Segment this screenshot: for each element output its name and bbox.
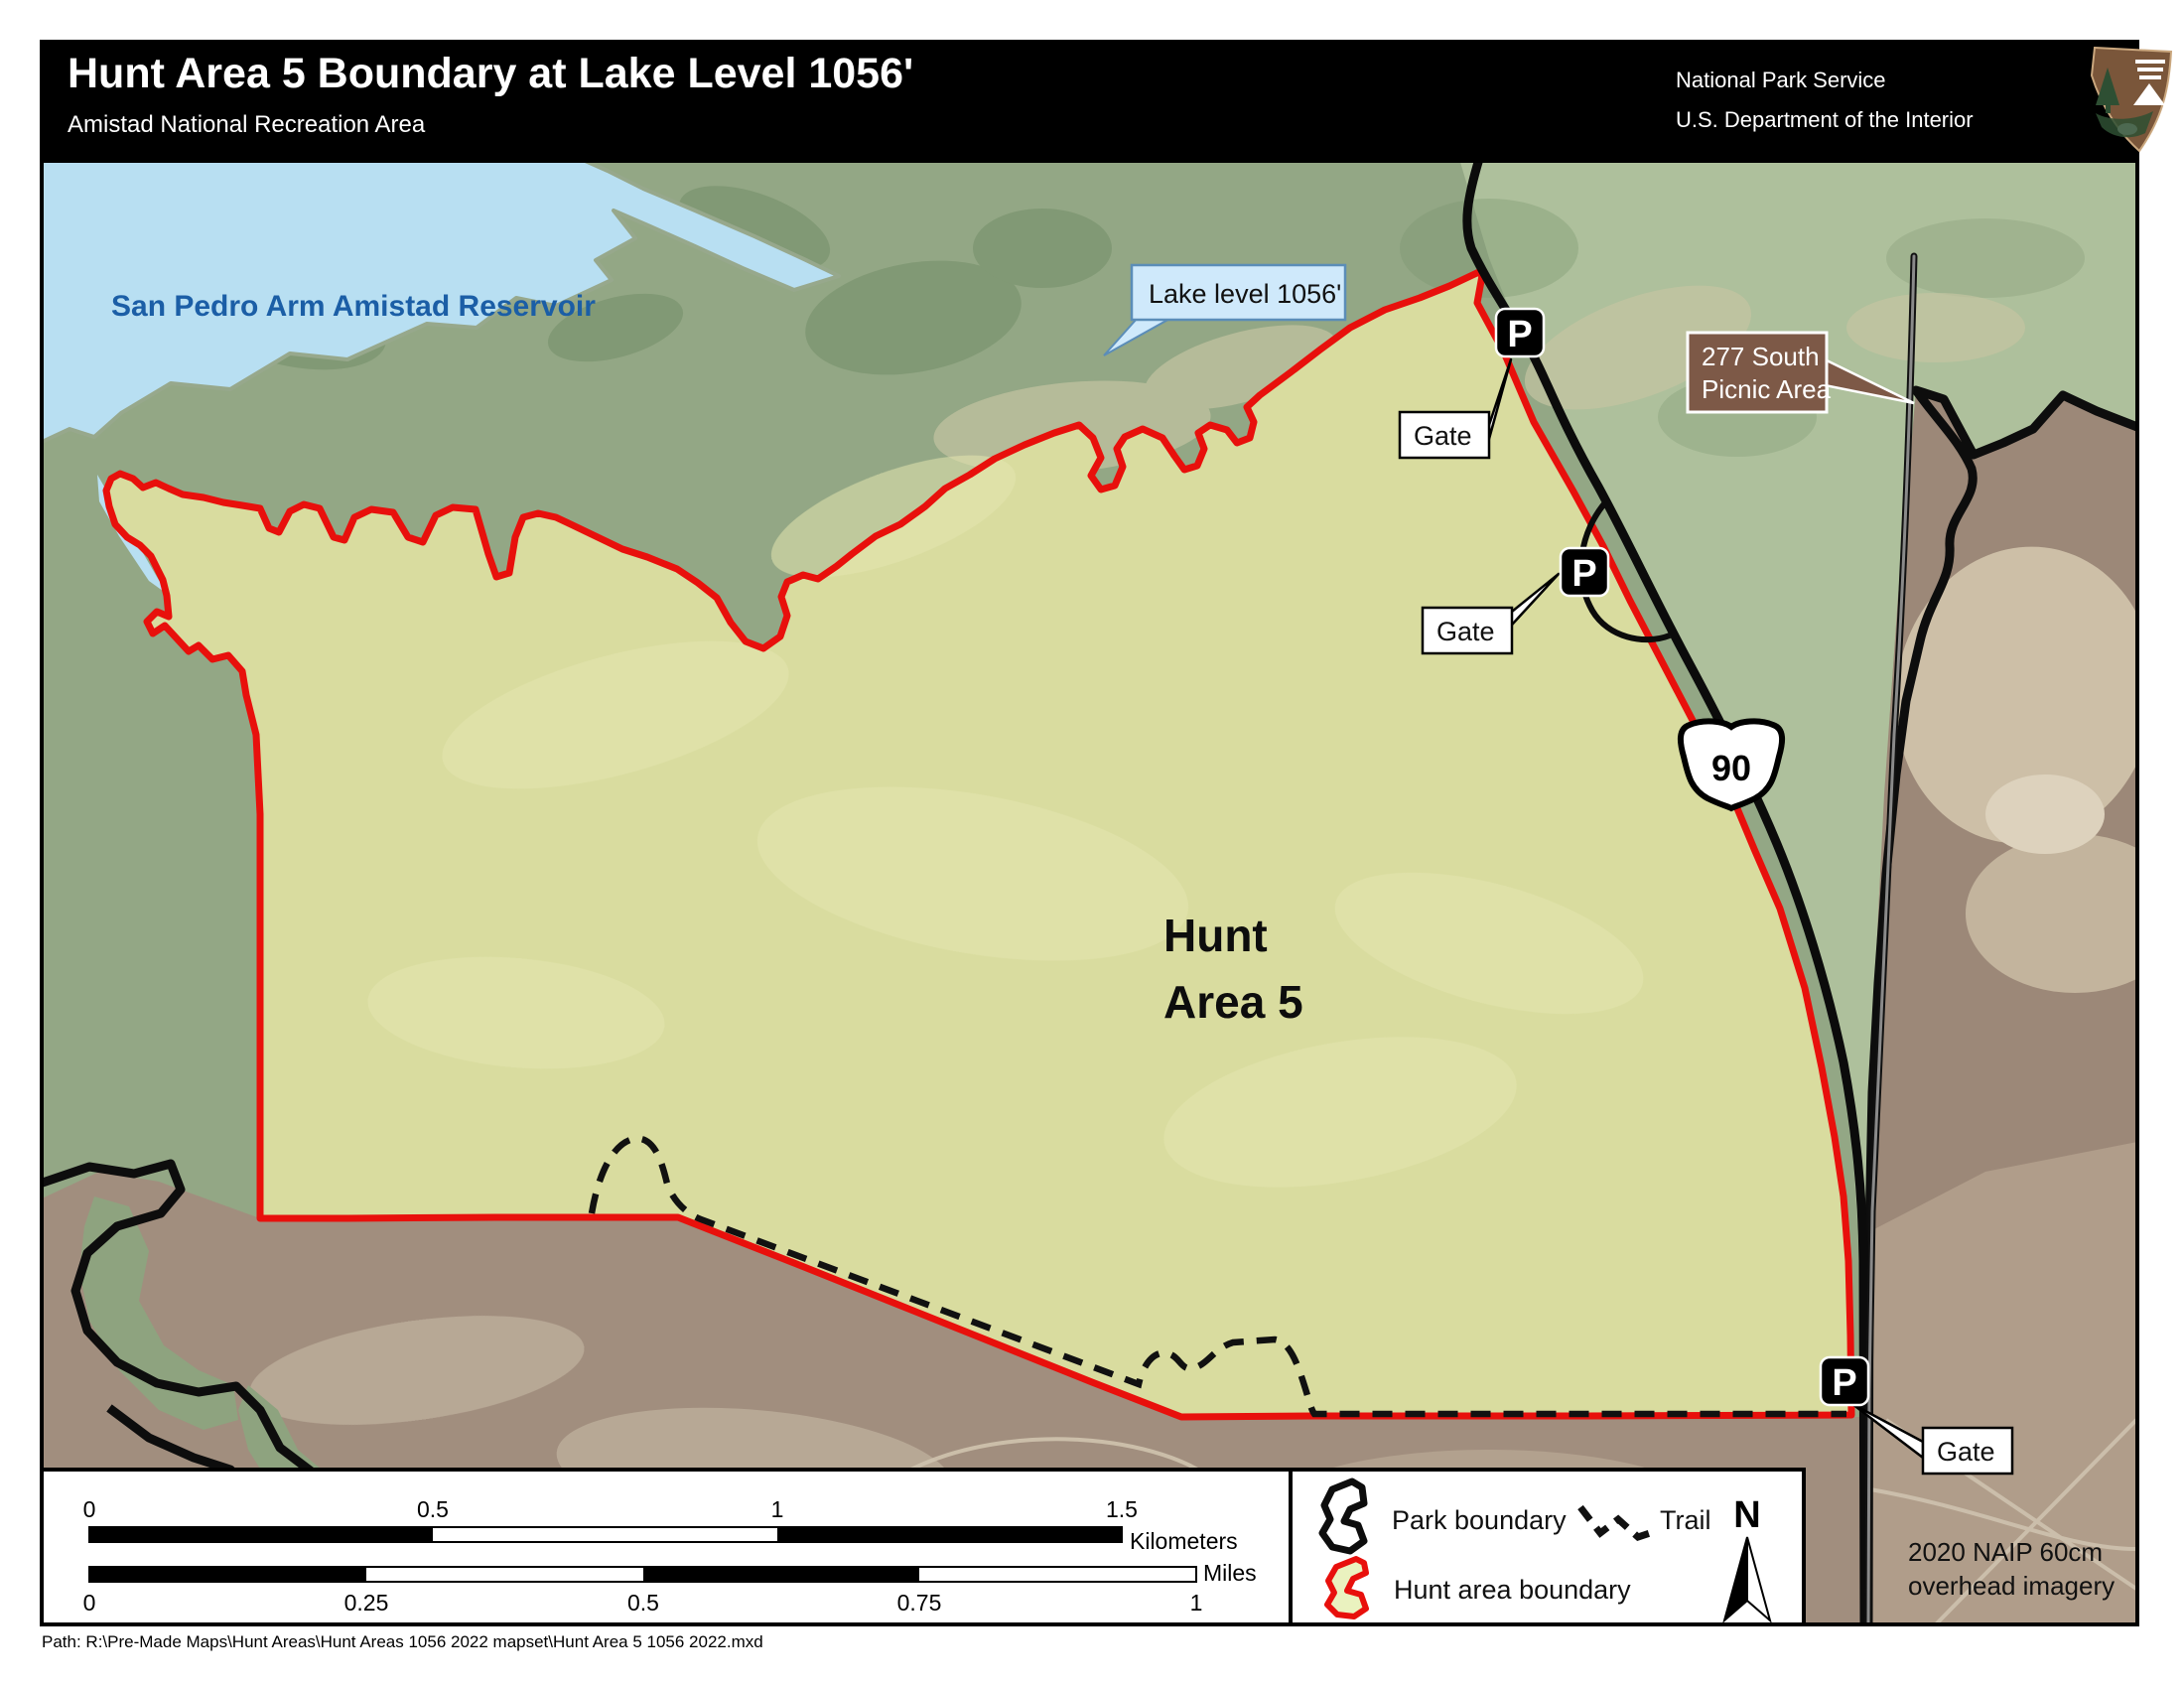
map-canvas: San Pedro Arm Amistad Reservoir Hunt Are… [40, 159, 2139, 1626]
parking-icon-2: P [1561, 548, 1608, 596]
gate-label-1: Gate [1400, 412, 1489, 458]
parking-icon-1-text: P [1507, 314, 1532, 355]
gate-label-3: Gate [1923, 1428, 2012, 1474]
gate-label-2: Gate [1423, 608, 1512, 653]
page-title: Hunt Area 5 Boundary at Lake Level 1056' [68, 50, 913, 98]
km-tick-0: 0 [83, 1496, 96, 1522]
trail-legend-label: Trail [1660, 1505, 1711, 1535]
mi-tick-3: 0.75 [897, 1590, 942, 1616]
km-tick-3: 1.5 [1106, 1496, 1138, 1522]
picnic-callout-line1: 277 South [1702, 342, 1820, 371]
mi-tick-2: 0.5 [627, 1590, 659, 1616]
map-svg: San Pedro Arm Amistad Reservoir Hunt Are… [40, 159, 2139, 1626]
parking-icon-2-text: P [1571, 553, 1596, 595]
imagery-credit-line1: 2020 NAIP 60cm [1908, 1537, 2103, 1567]
scalebar-box: 0 0.5 1 1.5 Kilometers Miles 0 0.25 0.5 … [42, 1470, 1291, 1624]
park-boundary-legend-label: Park boundary [1392, 1505, 1567, 1535]
page-subtitle: Amistad National Recreation Area [68, 111, 425, 139]
route-90-shield-text: 90 [1711, 748, 1751, 788]
nps-arrowhead-logo-icon [2050, 44, 2179, 155]
miles-unit-label: Miles [1203, 1560, 1257, 1586]
agency-line-1: National Park Service [1676, 68, 1886, 93]
legend-box: Park boundary Trail Hunt area boundary N [1291, 1470, 1804, 1624]
gate-label-2-text: Gate [1436, 617, 1495, 646]
gate-label-1-text: Gate [1414, 421, 1472, 451]
reservoir-label: San Pedro Arm Amistad Reservoir [111, 290, 596, 323]
km-tick-2: 1 [771, 1496, 784, 1522]
hunt-area-label-line1: Hunt [1163, 910, 1268, 961]
agency-line-2: U.S. Department of the Interior [1676, 107, 1974, 133]
map-document-page: Hunt Area 5 Boundary at Lake Level 1056'… [0, 0, 2184, 1688]
imagery-credit-line2: overhead imagery [1908, 1571, 2115, 1601]
parking-icon-3: P [1821, 1357, 1868, 1405]
hunt-area-label-line2: Area 5 [1163, 976, 1303, 1028]
gate-label-3-text: Gate [1937, 1437, 1995, 1467]
lake-level-callout-text: Lake level 1056' [1149, 279, 1341, 309]
km-unit-label: Kilometers [1130, 1528, 1238, 1554]
mi-tick-0: 0 [83, 1590, 96, 1616]
hunt-area-legend-label: Hunt area boundary [1394, 1575, 1631, 1605]
mi-tick-4: 1 [1190, 1590, 1203, 1616]
north-arrow-label: N [1733, 1494, 1760, 1536]
parking-icon-3-text: P [1832, 1362, 1856, 1404]
picnic-callout-line2: Picnic Area [1702, 374, 1832, 404]
footer-path: Path: R:\Pre-Made Maps\Hunt Areas\Hunt A… [42, 1632, 763, 1652]
header-bar: Hunt Area 5 Boundary at Lake Level 1056'… [40, 40, 2139, 159]
km-tick-1: 0.5 [417, 1496, 449, 1522]
parking-icon-1: P [1496, 309, 1544, 356]
mi-tick-1: 0.25 [344, 1590, 389, 1616]
